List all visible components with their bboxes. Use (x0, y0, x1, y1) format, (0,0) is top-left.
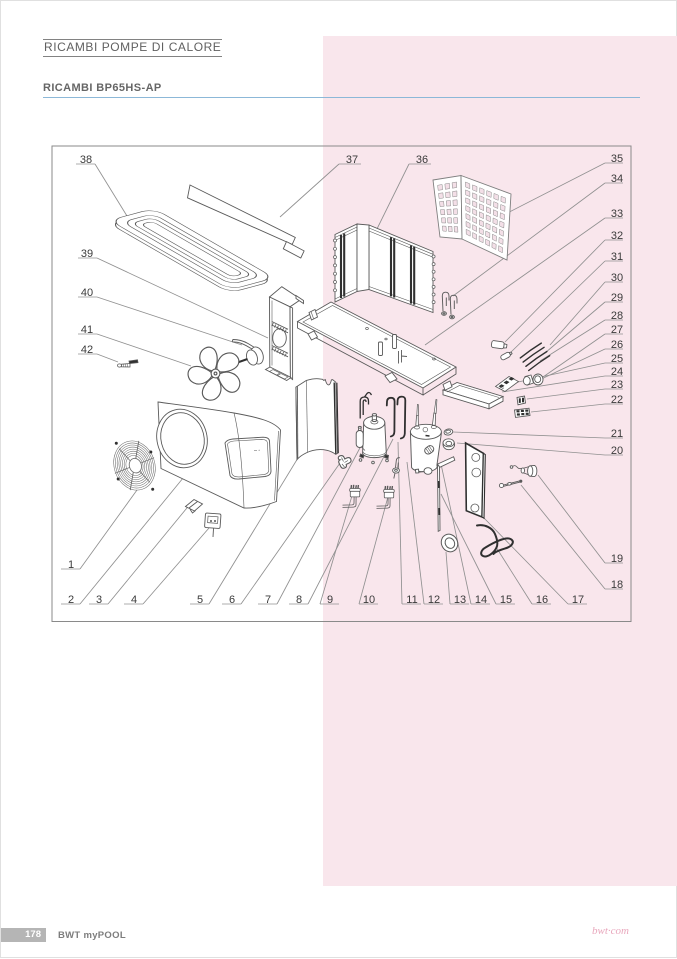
svg-text:5: 5 (197, 594, 203, 606)
svg-text:20: 20 (611, 445, 623, 457)
svg-text:22: 22 (611, 394, 623, 406)
svg-text:34: 34 (611, 173, 623, 185)
svg-text:4: 4 (131, 594, 137, 606)
svg-text:27: 27 (611, 324, 623, 336)
svg-text:2: 2 (68, 594, 74, 606)
svg-text:31: 31 (611, 251, 623, 263)
svg-text:9: 9 (327, 594, 333, 606)
svg-text:17: 17 (572, 594, 584, 606)
svg-text:10: 10 (363, 594, 375, 606)
svg-text:12: 12 (428, 594, 440, 606)
svg-text:32: 32 (611, 230, 623, 242)
svg-text:11: 11 (406, 594, 417, 606)
svg-text:40: 40 (81, 287, 93, 299)
svg-text:13: 13 (454, 594, 466, 606)
svg-text:8: 8 (296, 594, 302, 606)
svg-text:14: 14 (475, 594, 487, 606)
svg-text:3: 3 (96, 594, 102, 606)
svg-text:24: 24 (611, 366, 623, 378)
svg-text:19: 19 (611, 553, 623, 565)
svg-text:36: 36 (416, 154, 428, 166)
svg-text:35: 35 (611, 153, 623, 165)
svg-text:1: 1 (68, 559, 74, 571)
svg-text:16: 16 (536, 594, 548, 606)
svg-text:6: 6 (229, 594, 235, 606)
svg-text:39: 39 (81, 248, 93, 260)
svg-text:29: 29 (611, 292, 623, 304)
svg-text:23: 23 (611, 379, 623, 391)
svg-text:28: 28 (611, 310, 623, 322)
svg-text:25: 25 (611, 353, 623, 365)
svg-text:41: 41 (81, 324, 93, 336)
svg-text:15: 15 (500, 594, 512, 606)
svg-text:33: 33 (611, 208, 623, 220)
svg-text:21: 21 (611, 428, 623, 440)
svg-text:37: 37 (346, 154, 358, 166)
svg-text:7: 7 (265, 594, 271, 606)
svg-text:38: 38 (80, 154, 92, 166)
svg-text:42: 42 (81, 344, 93, 356)
svg-text:26: 26 (611, 339, 623, 351)
svg-text:18: 18 (611, 579, 623, 591)
svg-text:30: 30 (611, 272, 623, 284)
